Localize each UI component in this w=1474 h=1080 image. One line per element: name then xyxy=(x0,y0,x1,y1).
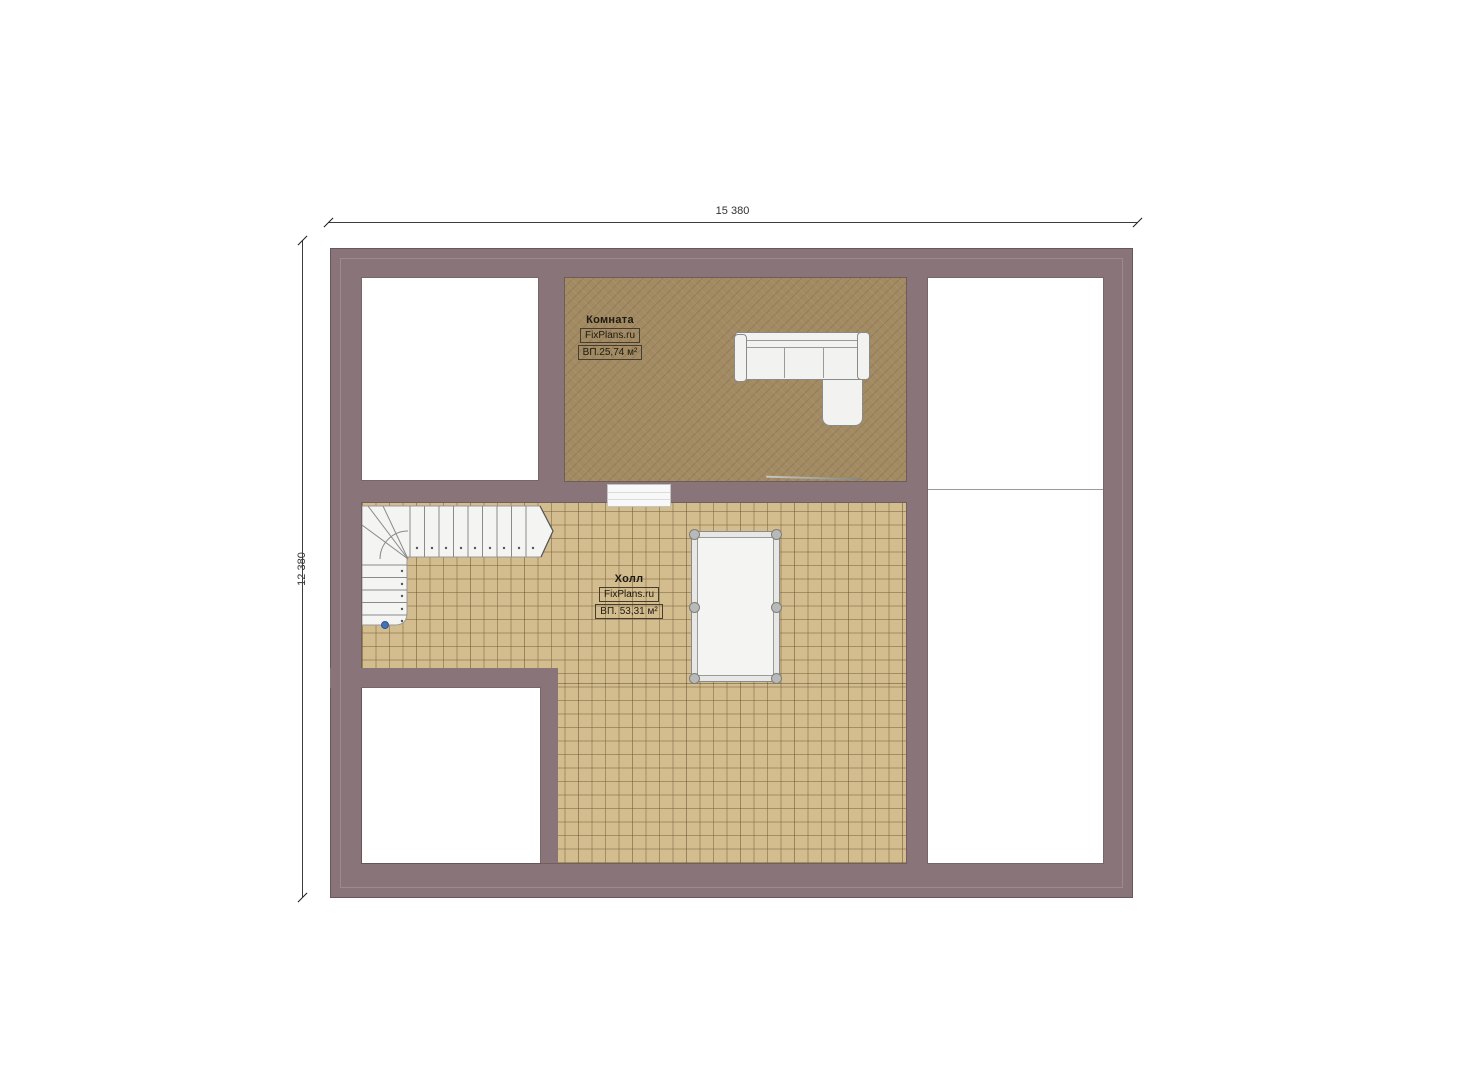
billiard-pocket xyxy=(689,673,700,684)
room-komnata-label: Комната FixPlans.ru ВП.25,74 м² xyxy=(567,314,653,360)
billiard-pocket xyxy=(771,673,782,684)
plan-walls: Комната FixPlans.ru ВП.25,74 м² Холл Fix… xyxy=(330,248,1133,898)
room-name: Комната xyxy=(567,314,653,326)
door-step xyxy=(608,485,670,506)
room-bottom-left xyxy=(362,688,540,863)
stair-start-marker xyxy=(382,622,389,629)
room-top-left xyxy=(362,278,538,480)
room-name: Холл xyxy=(586,573,672,585)
dimension-top-line xyxy=(328,222,1137,223)
billiard-pocket xyxy=(689,529,700,540)
corner-sofa xyxy=(735,332,869,425)
hall-floor-joint-line xyxy=(558,683,906,684)
sofa-seat-divider xyxy=(823,347,824,378)
billiard-pocket xyxy=(689,602,700,613)
billiard-pocket xyxy=(771,602,782,613)
floor-plan-canvas: 15 380 12 380 Комната FixPlans.ru ВП.25,… xyxy=(0,0,1474,1080)
sofa-back-line xyxy=(745,347,859,348)
billiard-pocket xyxy=(771,529,782,540)
brand-box: FixPlans.ru xyxy=(599,587,659,602)
room-hall-label: Холл FixPlans.ru ВП. 53,31 м² xyxy=(586,573,672,619)
area-box: ВП.25,74 м² xyxy=(578,345,643,360)
dimension-left-line xyxy=(302,240,303,897)
area-box: ВП. 53,31 м² xyxy=(595,604,662,619)
sofa-seat-divider xyxy=(784,347,785,378)
billiard-table xyxy=(691,531,780,682)
sofa-body xyxy=(735,332,869,380)
wall-bottom-room-top xyxy=(330,668,558,688)
dimension-top-label: 15 380 xyxy=(328,205,1137,217)
room-right-divider-line xyxy=(928,489,1103,490)
stair-tread-dots xyxy=(401,547,534,622)
sofa-armrest xyxy=(734,334,747,382)
sofa-back-line xyxy=(745,340,859,341)
sofa-armrest xyxy=(857,332,870,380)
wall-bottom-room-right xyxy=(540,668,558,863)
staircase xyxy=(362,504,560,632)
room-right xyxy=(928,278,1103,863)
brand-box: FixPlans.ru xyxy=(580,328,640,343)
